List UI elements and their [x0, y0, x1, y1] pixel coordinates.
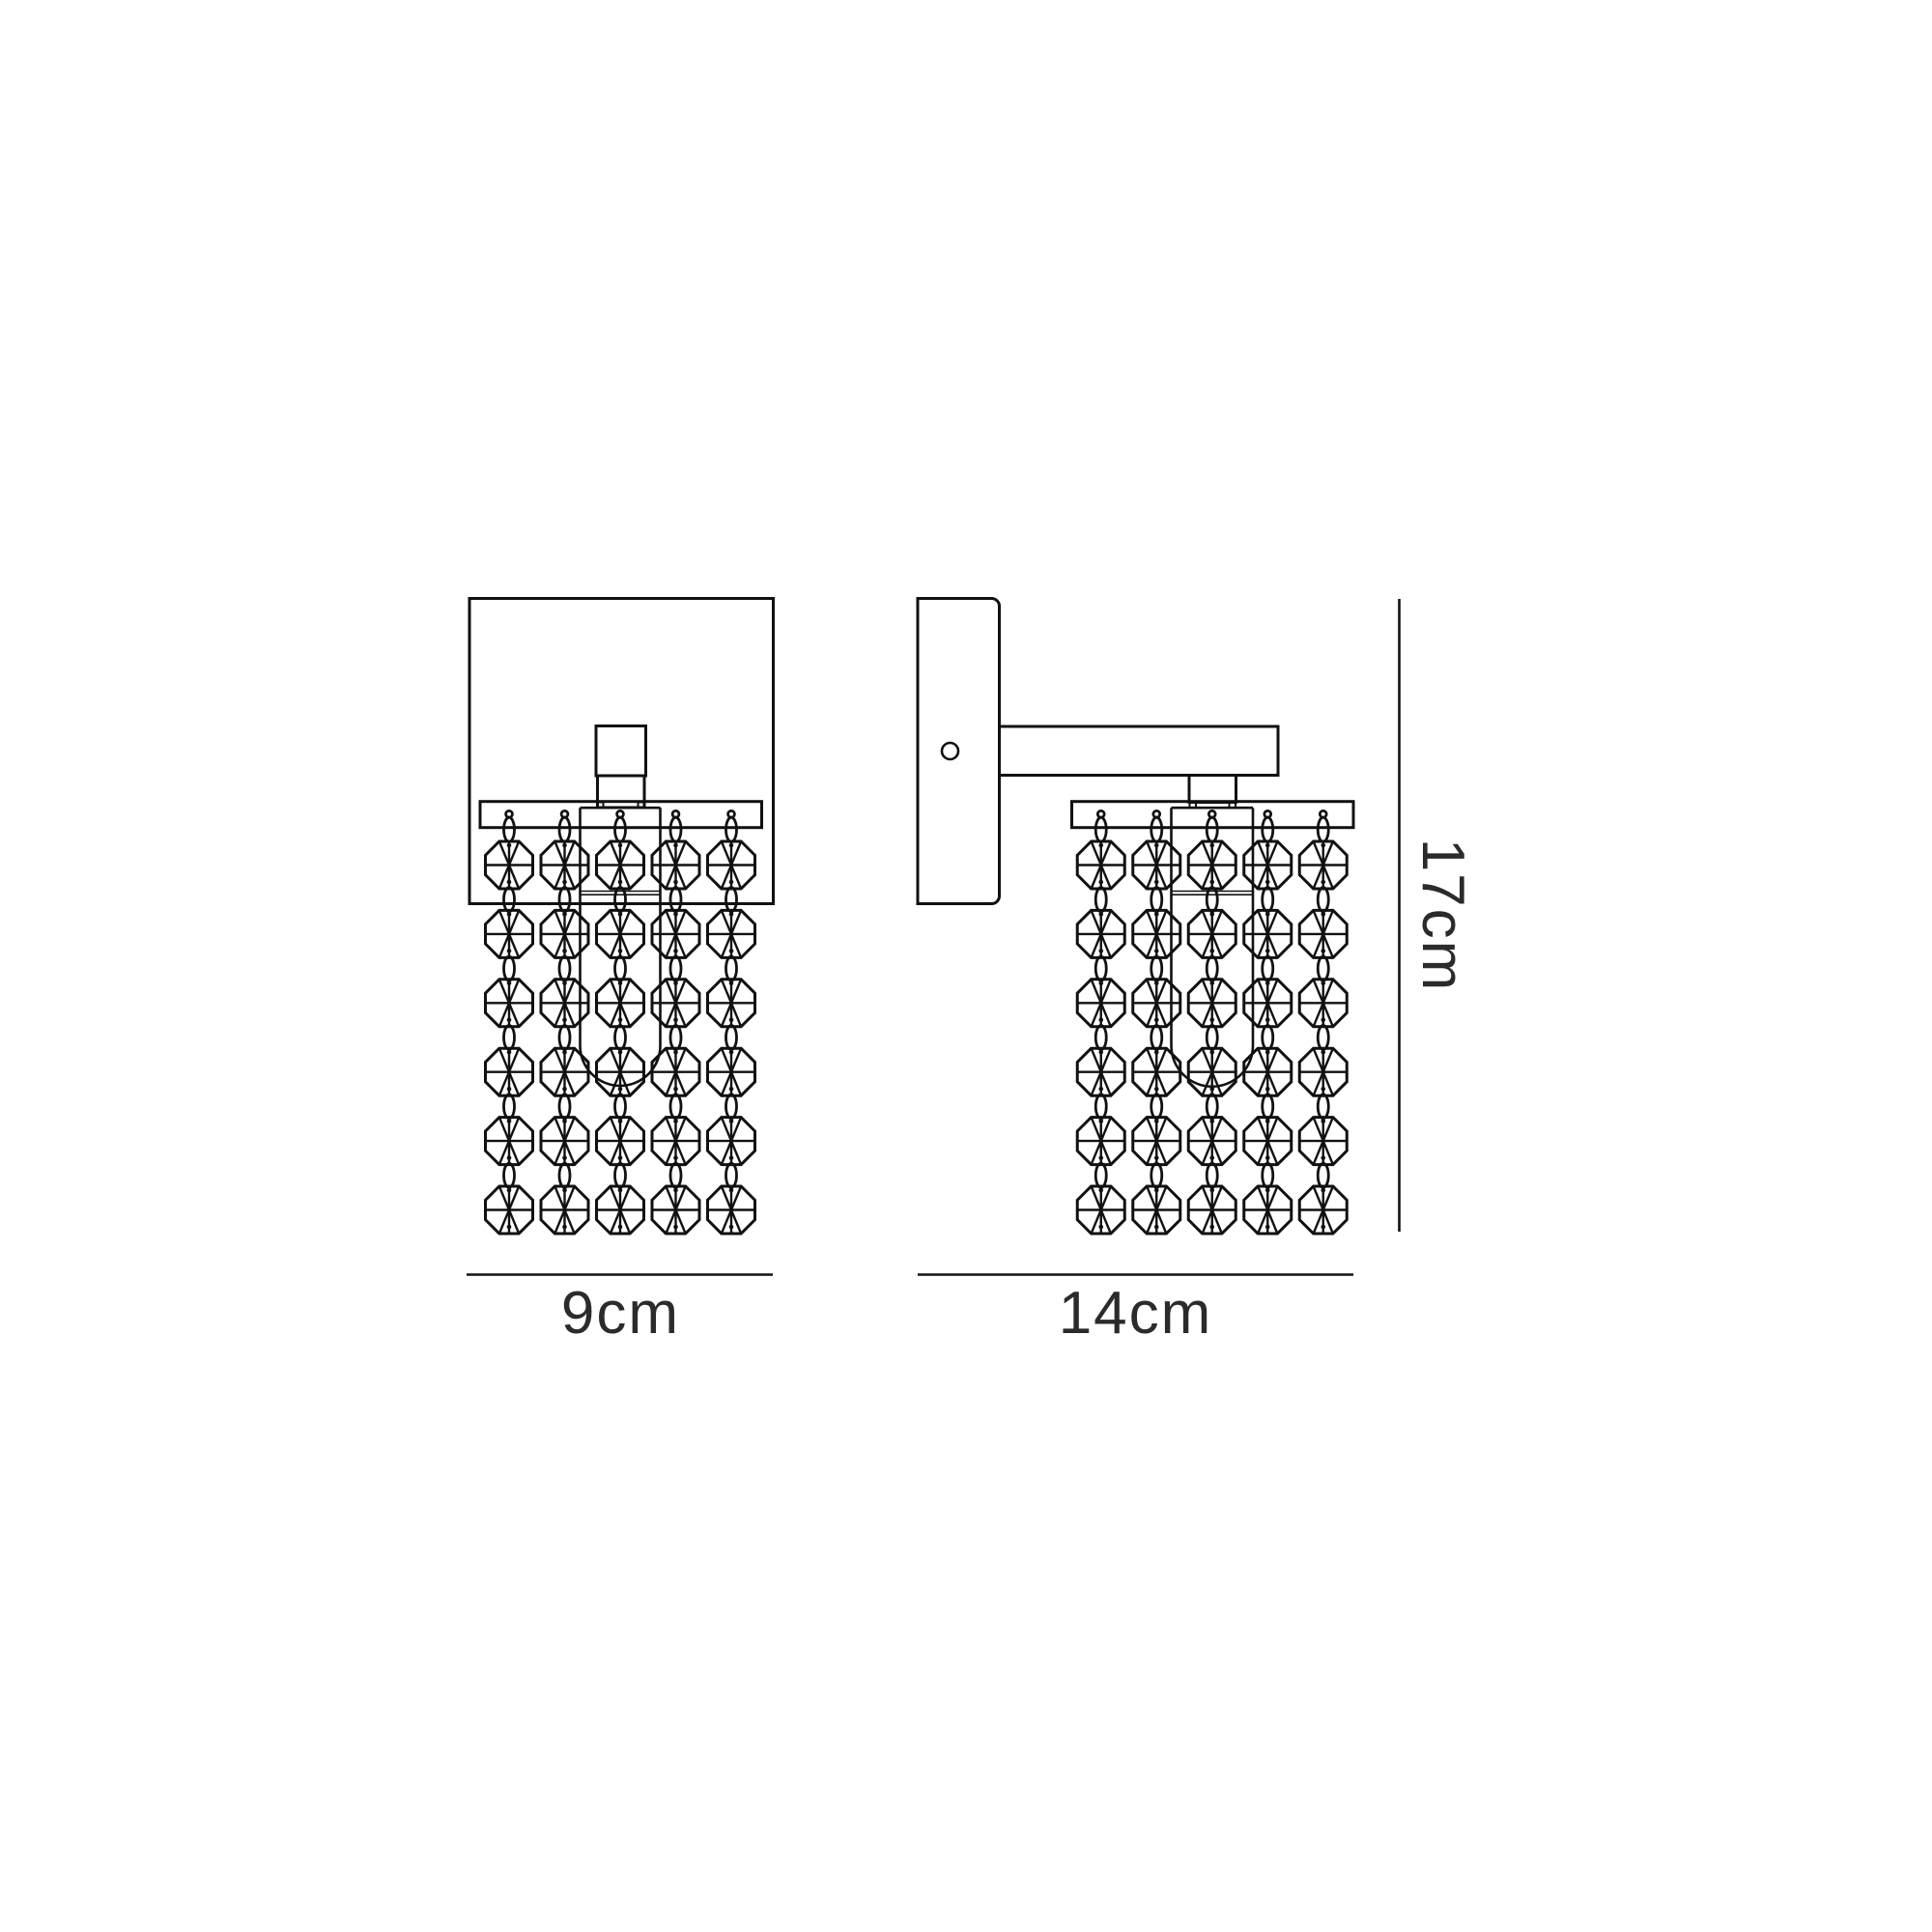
svg-text:17cm: 17cm — [1409, 838, 1476, 993]
svg-text:9cm: 9cm — [561, 1280, 680, 1347]
svg-text:14cm: 14cm — [1059, 1280, 1213, 1347]
